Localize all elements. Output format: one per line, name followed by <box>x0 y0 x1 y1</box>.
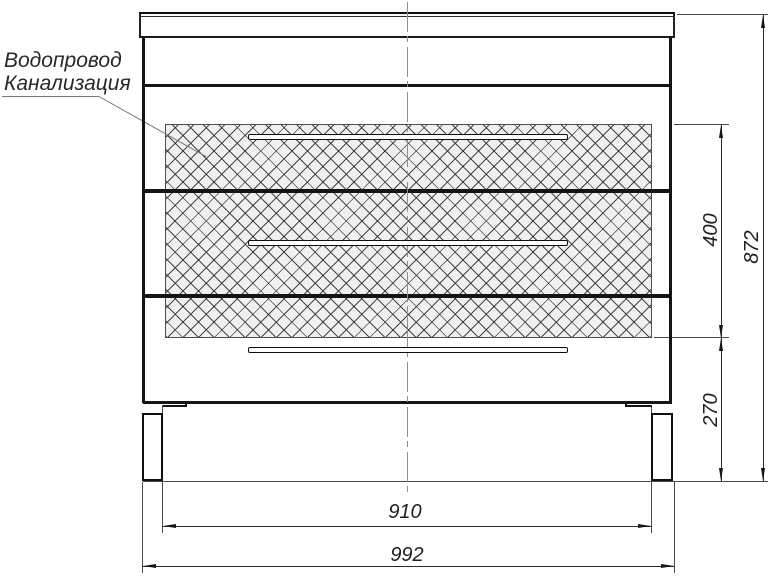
cabinet-side-right <box>669 37 672 403</box>
arrowhead-992-right <box>661 564 674 568</box>
ext-line-992-right <box>674 482 675 573</box>
callout-leader-underline <box>2 96 99 97</box>
dim-line-872 <box>763 15 764 481</box>
arrowhead-910-right <box>638 524 651 528</box>
vertical-centerline <box>407 2 408 492</box>
arrowhead-400-top <box>719 125 723 138</box>
dim-label-992: 992 <box>367 545 447 565</box>
dim-label-872: 872 <box>742 207 762 287</box>
arrowhead-872-bottom <box>761 468 765 481</box>
plinth-step-right <box>625 405 652 407</box>
arrowhead-872-top <box>761 15 765 28</box>
dim-label-910: 910 <box>365 502 445 522</box>
plinth-step-right-tick <box>625 401 627 407</box>
plumbing-callout: Водопровод Канализация <box>4 49 131 95</box>
arrowhead-910-left <box>163 524 176 528</box>
drawer-handle-1 <box>248 134 568 140</box>
drawer-handle-3 <box>248 347 568 353</box>
plinth-step-left <box>163 405 187 407</box>
leg-right <box>651 413 673 481</box>
arrowhead-270-bottom <box>719 468 723 481</box>
dim-label-270: 270 <box>701 370 721 450</box>
callout-line-water: Водопровод <box>4 49 131 72</box>
drawer-handle-2 <box>248 240 568 246</box>
arrowhead-992-left <box>143 564 156 568</box>
dim-line-910 <box>163 526 651 527</box>
dim-label-400: 400 <box>701 190 721 270</box>
callout-line-sewer: Канализация <box>4 72 131 95</box>
ext-line-992-left <box>142 482 143 573</box>
ext-line-hatch-bottom <box>654 337 729 338</box>
cabinet-side-left <box>142 37 145 403</box>
leg-left <box>142 413 163 481</box>
dim-line-992 <box>143 566 674 567</box>
plinth-step-left-tick <box>185 401 187 407</box>
cabinet-front-view-drawing: Водопровод Канализация 400 270 872 910 9… <box>0 0 768 576</box>
ext-line-top <box>677 14 768 15</box>
arrowhead-270-top <box>719 338 723 351</box>
arrowhead-400-bottom <box>719 325 723 338</box>
plumbing-zone-hatch-area <box>165 124 652 338</box>
